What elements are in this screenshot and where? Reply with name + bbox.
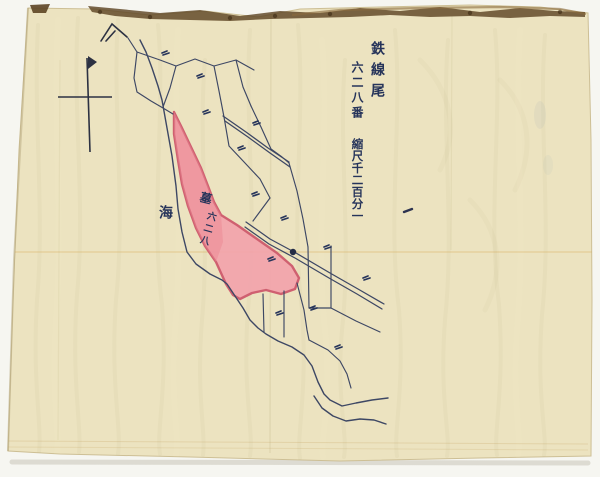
map-canvas xyxy=(0,0,600,477)
paper-smudge xyxy=(543,155,553,175)
paper-drop-shadow xyxy=(12,462,588,463)
road-junction-dot xyxy=(290,249,296,255)
torn-edge-spot xyxy=(328,12,332,16)
torn-edge-spot xyxy=(228,16,232,20)
paper-smudge xyxy=(534,101,546,129)
torn-edge-spot xyxy=(273,14,277,18)
scanned-cadastral-map: 鉄線尾六二八番縮尺千二百分一海墓六二八 xyxy=(0,0,600,477)
torn-edge-spot xyxy=(558,10,562,14)
torn-edge-spot xyxy=(98,10,102,14)
torn-edge-spot xyxy=(468,11,472,15)
crease-line xyxy=(270,12,271,453)
torn-edge-spot xyxy=(148,15,152,19)
